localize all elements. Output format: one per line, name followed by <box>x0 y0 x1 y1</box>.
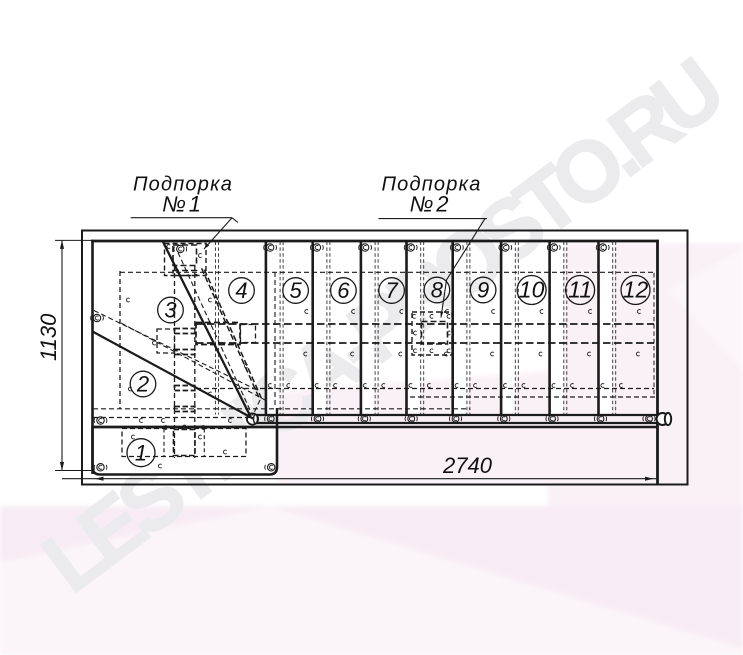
svg-text:4: 4 <box>235 278 247 303</box>
svg-text:12: 12 <box>623 277 649 303</box>
svg-text:6: 6 <box>337 278 350 303</box>
svg-text:10: 10 <box>519 277 545 303</box>
svg-text:11: 11 <box>568 277 592 303</box>
svg-text:№2: №2 <box>409 192 451 217</box>
svg-text:2740: 2740 <box>442 453 493 478</box>
svg-text:7: 7 <box>385 278 398 303</box>
svg-text:1130: 1130 <box>36 313 61 361</box>
svg-text:8: 8 <box>431 278 444 303</box>
svg-text:9: 9 <box>477 278 489 303</box>
svg-text:2: 2 <box>136 372 149 397</box>
svg-text:1: 1 <box>135 440 147 465</box>
svg-text:3: 3 <box>164 298 177 323</box>
svg-text:5: 5 <box>289 278 302 303</box>
svg-text:№1: №1 <box>162 192 204 217</box>
